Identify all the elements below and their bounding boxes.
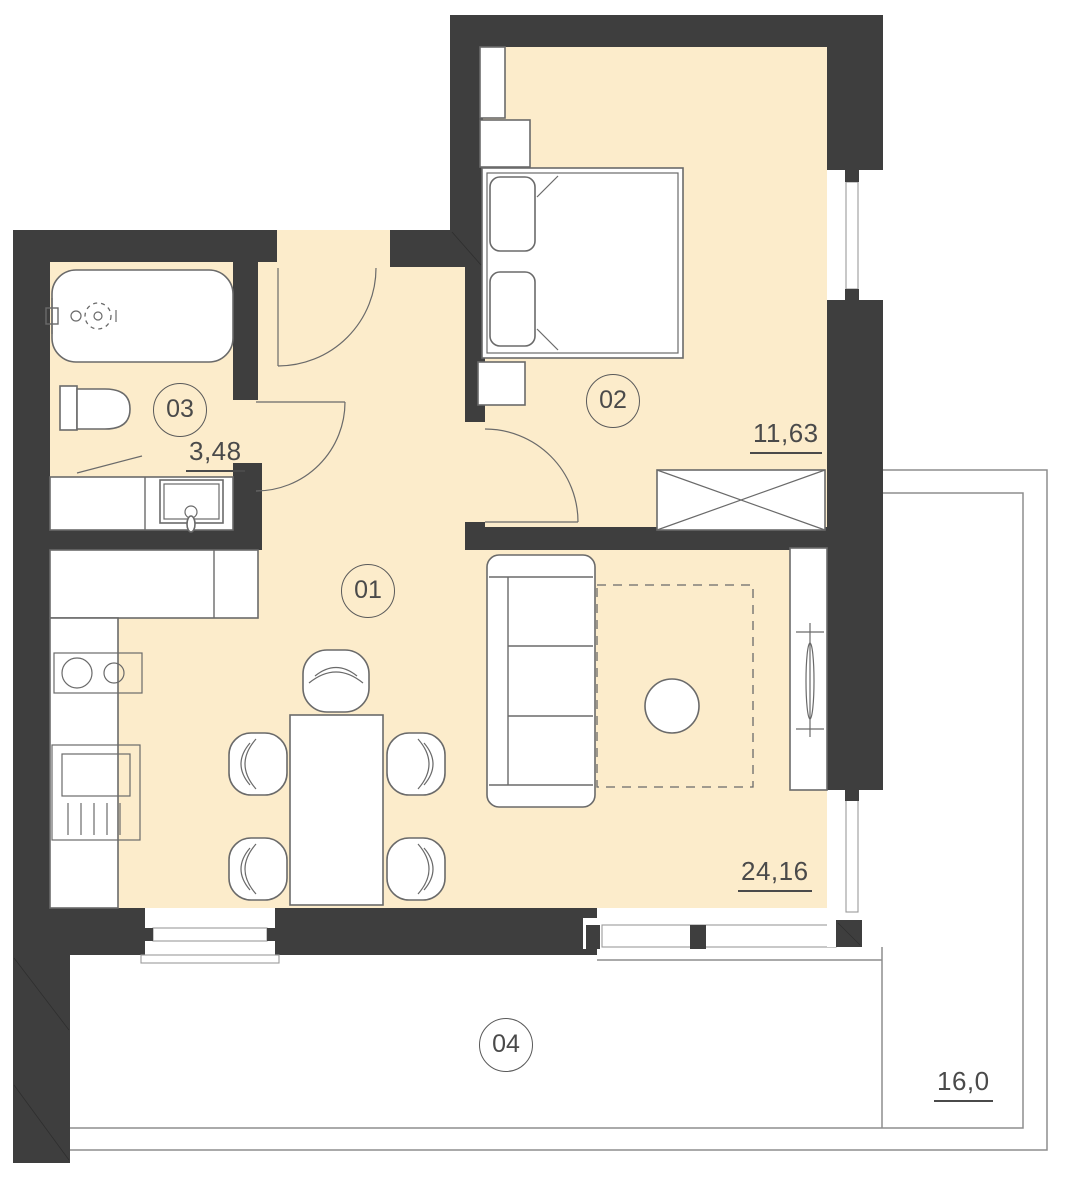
wall-bathroom-east-upper (233, 262, 258, 400)
kitchen-window-frame (153, 928, 267, 941)
pillow-1 (490, 177, 535, 251)
wall-hall-top-right (390, 230, 483, 267)
chair-right-2 (387, 838, 445, 900)
nightstand-1 (480, 120, 530, 167)
room-02-number: 02 (586, 374, 640, 428)
corner-column (13, 955, 70, 1163)
kitchen-window-sill (141, 955, 279, 963)
bedroom-window-frame (846, 182, 858, 289)
wall-bathroom-top (13, 230, 277, 262)
wall-bathroom-south (13, 528, 262, 550)
wall-bedroom-right-upper (827, 47, 883, 170)
dining-table (290, 715, 383, 905)
wall-bottom-mid (275, 908, 597, 955)
chair-left-1 (229, 733, 287, 795)
window-tick (845, 170, 859, 182)
chair-left-2 (229, 838, 287, 900)
glazing-tick (845, 790, 859, 801)
glazing-post (690, 925, 706, 949)
room-02-area: 11,63 (750, 418, 822, 454)
terrace-door-frame (846, 800, 858, 912)
bedroom-door-opening (465, 422, 485, 522)
pillow-2 (490, 272, 535, 346)
glazing-post (586, 925, 600, 949)
room-03-number: 03 (153, 383, 207, 437)
toilet-tank (60, 386, 77, 430)
wall-bottom-left (13, 908, 145, 955)
niche (480, 47, 505, 118)
window-recess-west (790, 548, 827, 790)
wall-bedroom-right-lower (827, 300, 883, 790)
room-03-area: 3,48 (186, 436, 245, 472)
toilet (77, 389, 130, 429)
wardrobe (657, 470, 825, 530)
bathtub (52, 270, 233, 362)
floor-plan: 01 02 03 04 24,16 11,63 3,48 16,0 (0, 0, 1065, 1183)
living-glazing-frame (602, 925, 836, 947)
coffee-table (645, 679, 699, 733)
room-04-number: 04 (479, 1018, 533, 1072)
kitchen-counter-top (50, 550, 258, 618)
washbasin-faucet-body (187, 516, 195, 532)
room-01-number: 01 (341, 564, 395, 618)
kitchen-counter-left (50, 618, 118, 908)
room-01-area: 24,16 (738, 856, 812, 892)
window-tick (845, 289, 859, 301)
floor-plan-drawing (0, 0, 1065, 1183)
hall-living-connector (262, 526, 465, 550)
wall-left-exterior (13, 262, 50, 908)
sofa (487, 555, 595, 807)
hallway-floor (255, 262, 465, 550)
window-tick (145, 928, 153, 941)
window-tick (267, 928, 275, 941)
nightstand-2 (478, 362, 525, 405)
room-04-area: 16,0 (934, 1066, 993, 1102)
chair-top (303, 650, 369, 712)
chair-right-1 (387, 733, 445, 795)
entrance-threshold (277, 230, 390, 267)
wall-bedroom-top (450, 15, 883, 47)
